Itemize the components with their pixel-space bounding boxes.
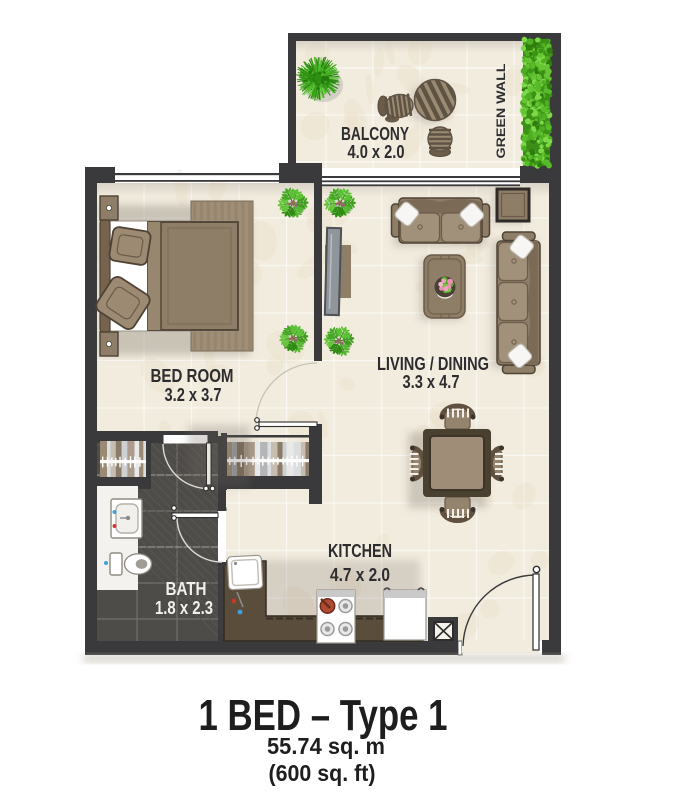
svg-text:55.74 sq. m: 55.74 sq. m <box>267 733 385 759</box>
svg-text:LIVING / DINING: LIVING / DINING <box>377 354 489 374</box>
svg-text:4.0 x 2.0: 4.0 x 2.0 <box>348 142 405 162</box>
svg-text:GREEN WALL: GREEN WALL <box>494 64 508 159</box>
svg-text:KITCHEN: KITCHEN <box>328 541 392 561</box>
svg-text:4.7 x 2.0: 4.7 x 2.0 <box>330 565 390 585</box>
svg-text:3.3 x 4.7: 3.3 x 4.7 <box>403 372 460 392</box>
svg-text:1.8 x 2.3: 1.8 x 2.3 <box>155 598 213 618</box>
svg-text:3.2 x 3.7: 3.2 x 3.7 <box>165 385 222 405</box>
svg-text:(600 sq. ft): (600 sq. ft) <box>269 760 376 786</box>
svg-text:BED ROOM: BED ROOM <box>151 366 234 386</box>
svg-text:BALCONY: BALCONY <box>341 124 409 144</box>
svg-text:BATH: BATH <box>166 579 207 599</box>
